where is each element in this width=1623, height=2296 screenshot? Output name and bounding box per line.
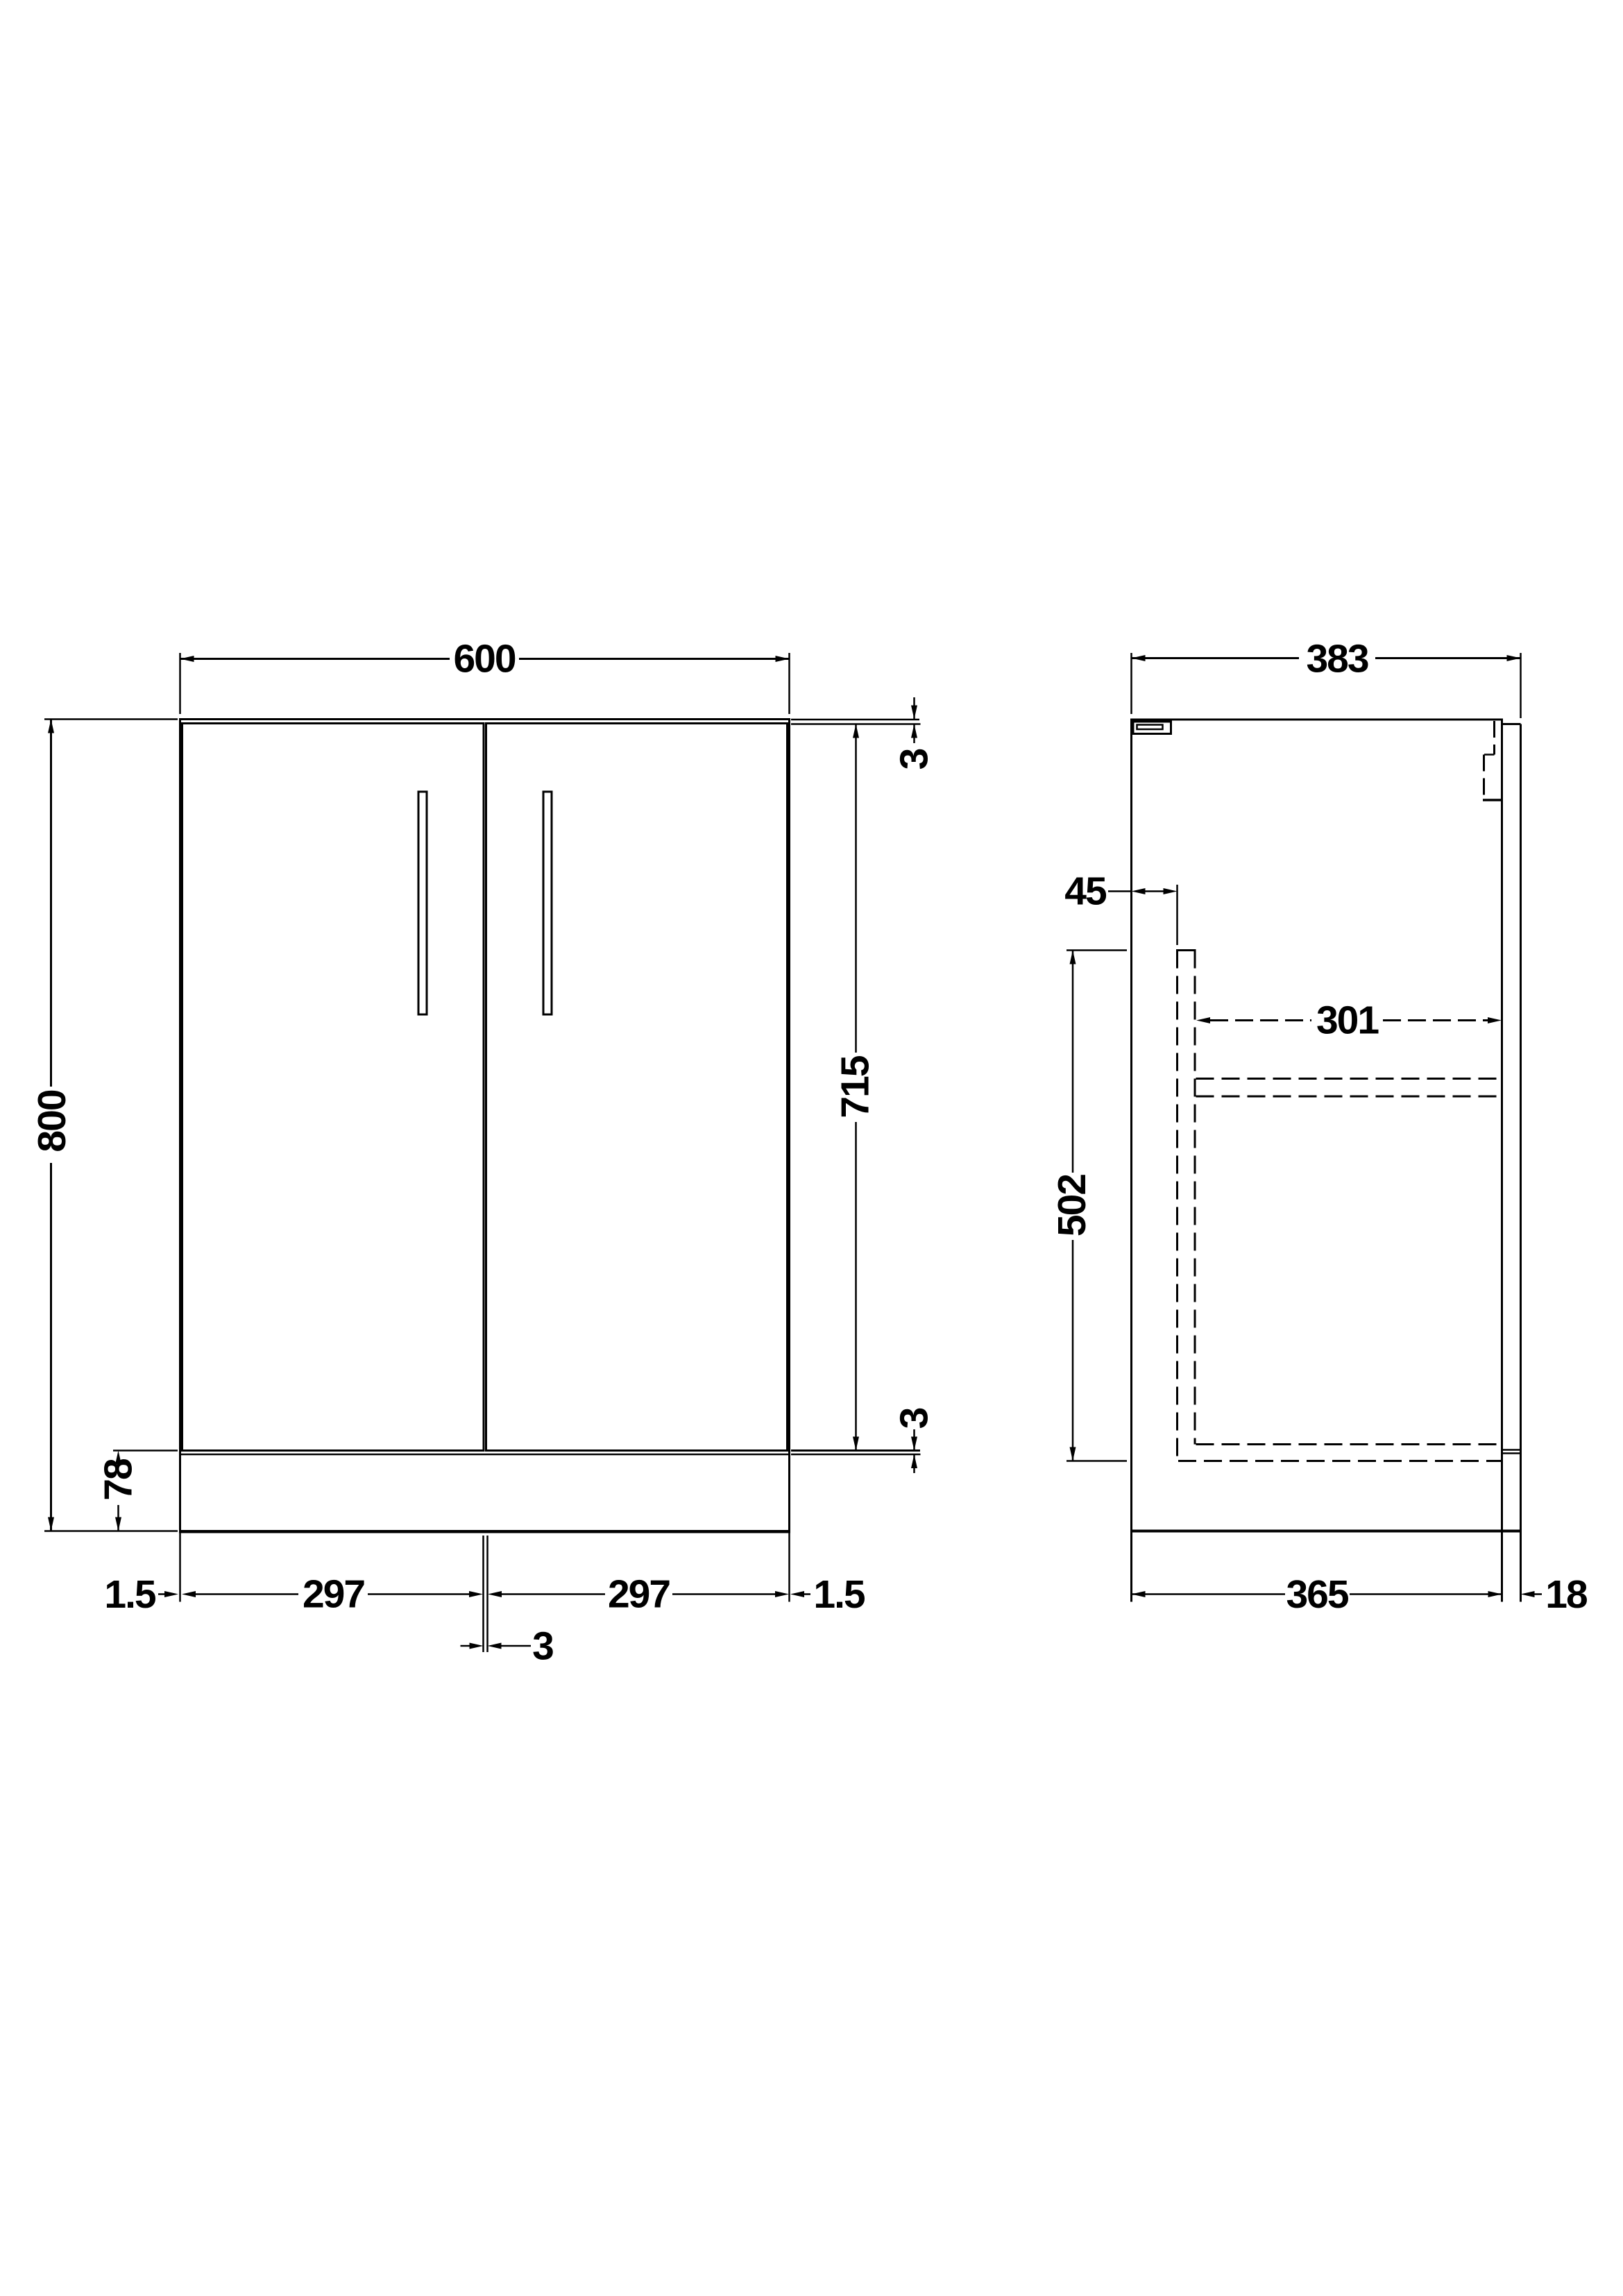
svg-text:600: 600 — [453, 637, 515, 681]
svg-text:3: 3 — [892, 749, 937, 769]
svg-text:715: 715 — [833, 1055, 878, 1118]
svg-text:1.5: 1.5 — [104, 1572, 156, 1617]
svg-text:3: 3 — [532, 1624, 553, 1669]
svg-text:301: 301 — [1316, 998, 1379, 1043]
svg-text:3: 3 — [892, 1408, 937, 1429]
svg-text:383: 383 — [1306, 637, 1368, 681]
svg-text:800: 800 — [30, 1090, 74, 1152]
svg-text:297: 297 — [608, 1572, 670, 1617]
svg-text:78: 78 — [96, 1459, 141, 1501]
svg-text:18: 18 — [1545, 1572, 1587, 1617]
svg-text:1.5: 1.5 — [813, 1572, 865, 1617]
svg-text:365: 365 — [1286, 1572, 1348, 1617]
svg-text:502: 502 — [1050, 1175, 1094, 1236]
svg-text:45: 45 — [1064, 869, 1107, 914]
svg-text:297: 297 — [303, 1572, 364, 1617]
